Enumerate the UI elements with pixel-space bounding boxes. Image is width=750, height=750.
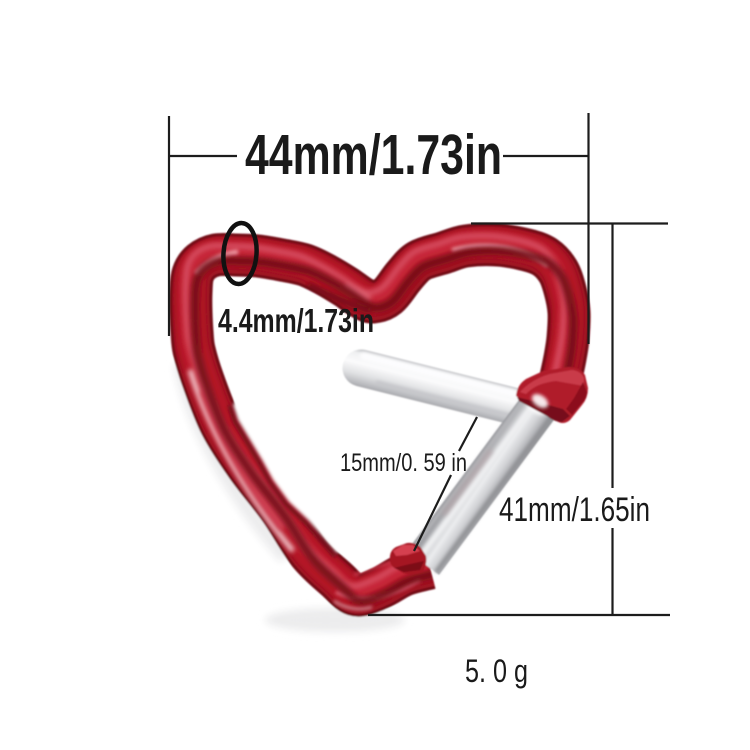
svg-text:4.4mm/1.73in: 4.4mm/1.73in [218,302,374,339]
svg-text:41mm/1.65in: 41mm/1.65in [499,491,650,529]
svg-text:5. 0 g: 5. 0 g [465,653,528,689]
svg-text:44mm/1.73in: 44mm/1.73in [245,123,502,187]
svg-text:15mm/0. 59 in: 15mm/0. 59 in [340,449,467,477]
